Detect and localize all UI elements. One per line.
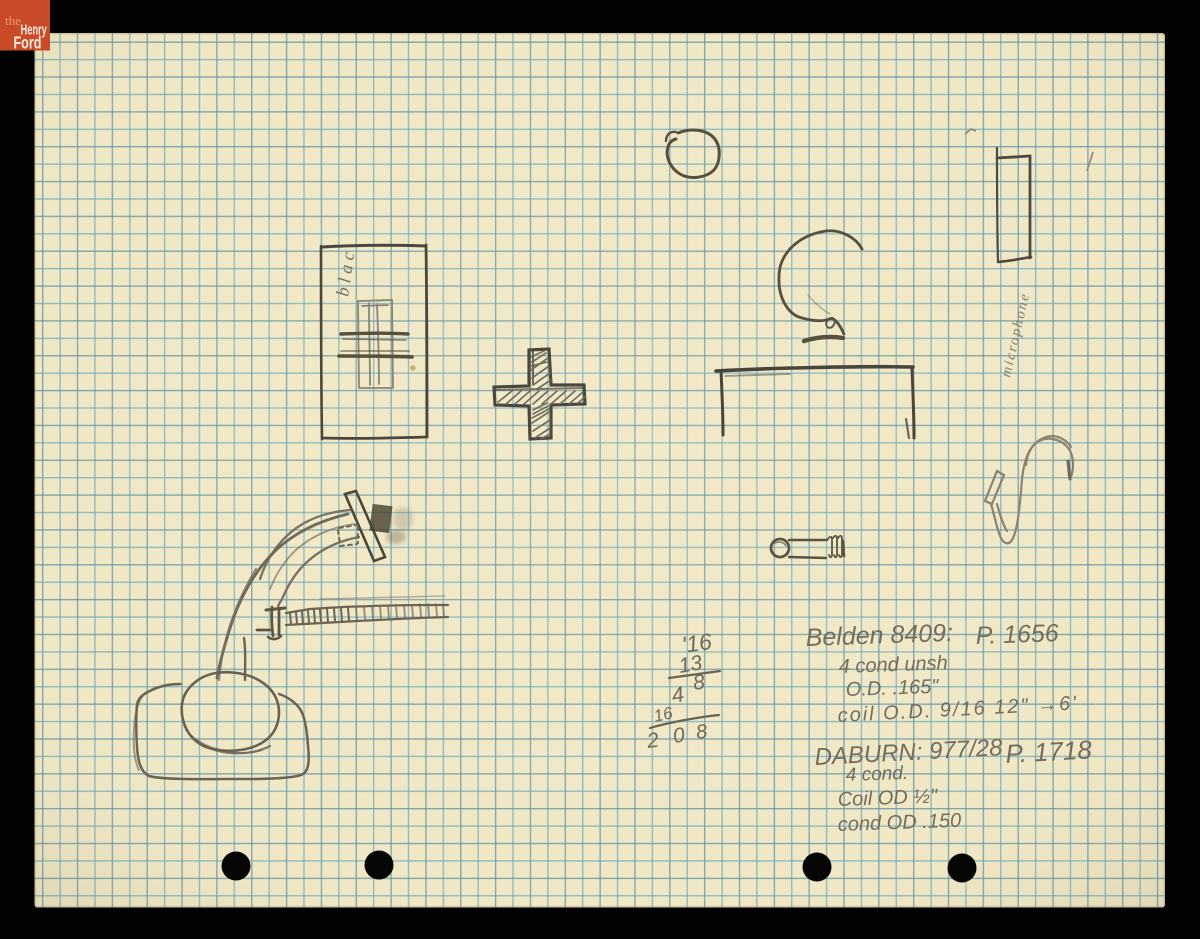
svg-text:P. 1656: P. 1656 xyxy=(975,619,1059,650)
svg-text:4 cond unsh: 4 cond unsh xyxy=(838,652,948,678)
svg-text:Ford: Ford xyxy=(14,33,42,53)
svg-text:the: the xyxy=(5,13,21,28)
svg-text:O.D. .165": O.D. .165" xyxy=(845,676,939,701)
svg-text:4 cond.: 4 cond. xyxy=(845,763,908,786)
svg-text:P. 1718: P. 1718 xyxy=(1005,734,1093,769)
svg-text:cond OD .150: cond OD .150 xyxy=(837,810,961,836)
svg-text:Belden 8409:: Belden 8409: xyxy=(805,619,953,652)
svg-text:Coil OD ½": Coil OD ½" xyxy=(837,786,938,811)
